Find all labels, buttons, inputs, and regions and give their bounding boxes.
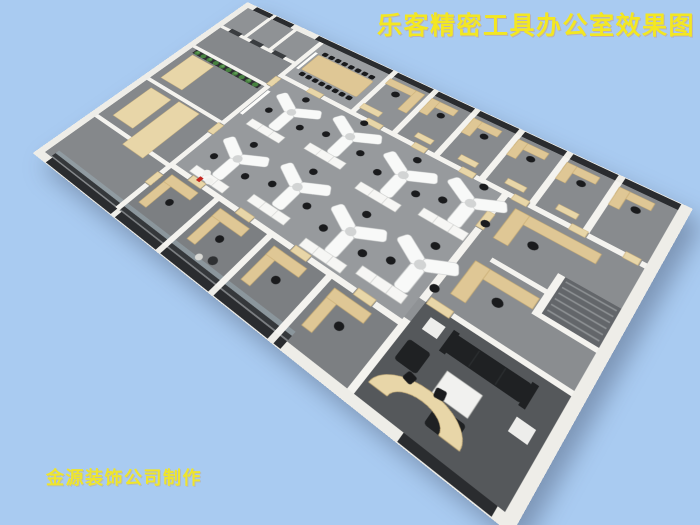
title-text: 乐客精密工具办公室效果图 xyxy=(377,6,695,42)
watermark-text: 金源装饰公司制作 xyxy=(46,464,202,490)
floor-plan xyxy=(45,8,678,512)
render-canvas: 乐客精密工具办公室效果图 金源装饰公司制作 xyxy=(0,0,700,525)
office-building xyxy=(0,0,700,525)
